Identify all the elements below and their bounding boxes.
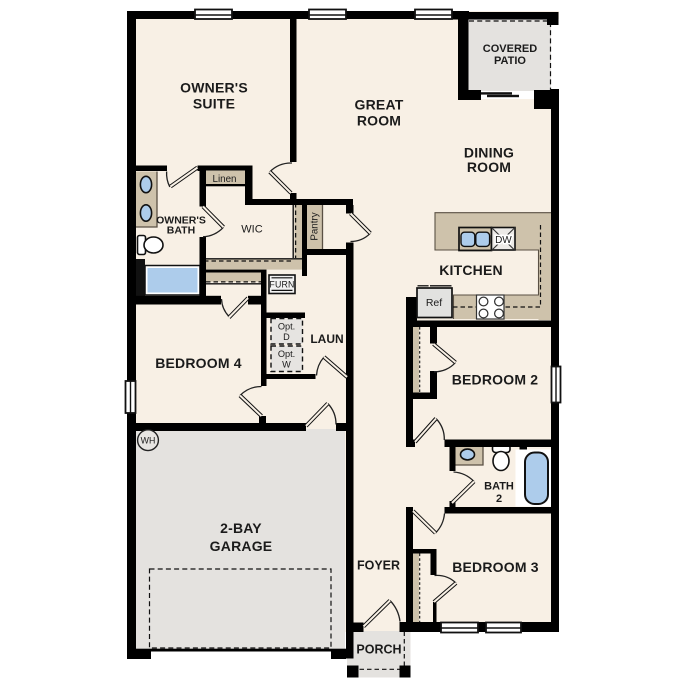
svg-text:2-BAY: 2-BAY: [220, 520, 262, 536]
svg-text:SUITE: SUITE: [193, 96, 235, 112]
svg-text:Opt.: Opt.: [278, 349, 295, 359]
svg-text:BEDROOM 4: BEDROOM 4: [155, 355, 242, 371]
svg-text:FOYER: FOYER: [357, 559, 400, 573]
svg-text:BEDROOM 2: BEDROOM 2: [452, 372, 539, 388]
svg-text:FURN: FURN: [269, 279, 294, 289]
svg-text:Opt.: Opt.: [278, 322, 295, 332]
svg-text:WH: WH: [141, 435, 156, 445]
svg-text:BEDROOM 3: BEDROOM 3: [452, 559, 539, 575]
svg-text:PATIO: PATIO: [494, 55, 526, 67]
svg-text:ROOM: ROOM: [467, 159, 511, 175]
svg-text:OWNER'S: OWNER'S: [180, 80, 248, 96]
svg-text:D: D: [283, 332, 290, 342]
svg-text:PORCH: PORCH: [356, 643, 401, 657]
svg-text:WIC: WIC: [241, 224, 262, 236]
svg-text:GARAGE: GARAGE: [210, 538, 273, 554]
svg-text:BATH: BATH: [167, 225, 195, 237]
svg-text:KITCHEN: KITCHEN: [439, 262, 503, 278]
svg-text:LAUN: LAUN: [310, 332, 343, 346]
svg-text:DW: DW: [495, 235, 512, 246]
svg-text:2: 2: [496, 493, 502, 505]
svg-text:Linen: Linen: [213, 174, 237, 185]
svg-text:W: W: [282, 360, 291, 370]
svg-text:GREAT: GREAT: [355, 97, 404, 113]
svg-text:BATH: BATH: [484, 481, 514, 493]
svg-text:COVERED: COVERED: [483, 43, 537, 55]
svg-text:Ref: Ref: [426, 297, 442, 309]
svg-text:Pantry: Pantry: [310, 212, 321, 240]
svg-text:ROOM: ROOM: [357, 113, 401, 129]
